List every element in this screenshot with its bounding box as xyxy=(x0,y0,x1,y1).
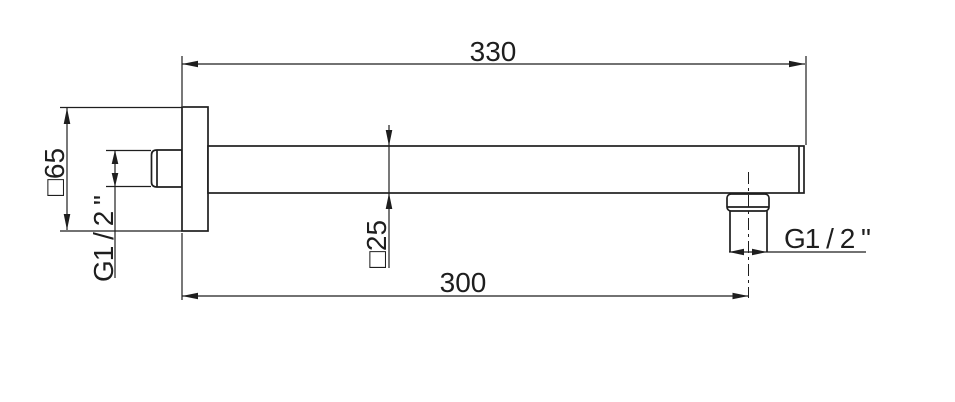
dim-text-300: 300 xyxy=(440,267,487,298)
dimension-projection-length: 300 xyxy=(182,233,749,300)
dimension-outlet-thread: G1 / 2 " xyxy=(729,223,870,255)
shower-arm-technical-drawing: 330 300 □65 G1 / 2 " xyxy=(0,0,955,402)
arm-bar xyxy=(208,146,804,193)
label-inlet-thread: G1 / 2 " xyxy=(88,196,119,282)
arrowhead-right xyxy=(789,61,805,68)
dim-text-square-25: □25 xyxy=(361,220,392,268)
arrowhead-bottom xyxy=(386,193,393,209)
label-outlet-thread: G1 / 2 " xyxy=(784,223,870,254)
arrowhead-right xyxy=(733,293,749,300)
dimension-overall-length: 330 xyxy=(182,36,806,145)
arrowhead-top xyxy=(386,130,393,146)
dim-text-square-65: □65 xyxy=(39,148,70,196)
wall-plate xyxy=(182,107,208,231)
dim-text-330: 330 xyxy=(470,36,517,67)
dimension-inlet-thread: G1 / 2 " xyxy=(88,150,151,282)
arrowhead-left xyxy=(182,61,198,68)
inlet-nipple xyxy=(152,150,183,187)
arrowhead-bottom xyxy=(64,214,71,230)
arrowhead-left xyxy=(729,249,744,256)
arrowhead-right xyxy=(752,249,767,256)
arrowhead-bottom xyxy=(112,173,119,187)
arrowhead-top xyxy=(112,150,119,164)
arrowhead-top xyxy=(64,108,71,124)
arrowhead-left xyxy=(182,293,198,300)
drawing-canvas: 330 300 □65 G1 / 2 " xyxy=(0,0,955,402)
